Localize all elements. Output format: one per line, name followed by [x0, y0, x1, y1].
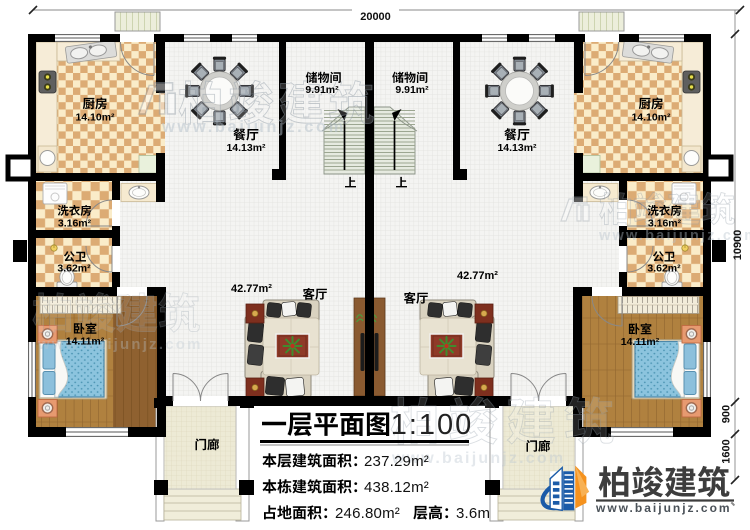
svg-text:www.baijunjz.com: www.baijunjz.com [37, 336, 203, 353]
svg-text:237.29m²: 237.29m² [364, 453, 429, 470]
svg-text:3.6m: 3.6m [456, 505, 490, 522]
svg-text:www.baijunjz.com: www.baijunjz.com [595, 501, 732, 515]
svg-text:14.11m²: 14.11m² [621, 336, 660, 348]
svg-text:42.77m²: 42.77m² [457, 270, 498, 282]
svg-text:438.12m²: 438.12m² [364, 479, 429, 496]
svg-text:3.62m²: 3.62m² [647, 263, 681, 275]
svg-text:14.10m²: 14.10m² [631, 112, 671, 124]
svg-text:42.77m²: 42.77m² [231, 283, 272, 295]
svg-text:14.13m²: 14.13m² [226, 142, 266, 154]
svg-text:10900: 10900 [732, 230, 744, 261]
svg-text:3.16m²: 3.16m² [58, 218, 92, 230]
svg-text:3.62m²: 3.62m² [57, 263, 91, 275]
svg-text:14.13m²: 14.13m² [497, 142, 537, 154]
svg-text:1:100: 1:100 [391, 409, 474, 441]
svg-text:9.91m²: 9.91m² [305, 84, 339, 96]
svg-text:246.80m²: 246.80m² [335, 505, 400, 522]
svg-text:www.baijunjz.com: www.baijunjz.com [598, 228, 750, 244]
svg-text:1600: 1600 [721, 439, 733, 463]
svg-text:900: 900 [721, 405, 733, 423]
svg-text:14.11m²: 14.11m² [66, 336, 105, 348]
svg-text:9.91m²: 9.91m² [395, 84, 429, 96]
svg-text:14.10m²: 14.10m² [75, 112, 115, 124]
svg-text:20000: 20000 [360, 11, 391, 23]
svg-text:3.16m²: 3.16m² [648, 218, 682, 230]
